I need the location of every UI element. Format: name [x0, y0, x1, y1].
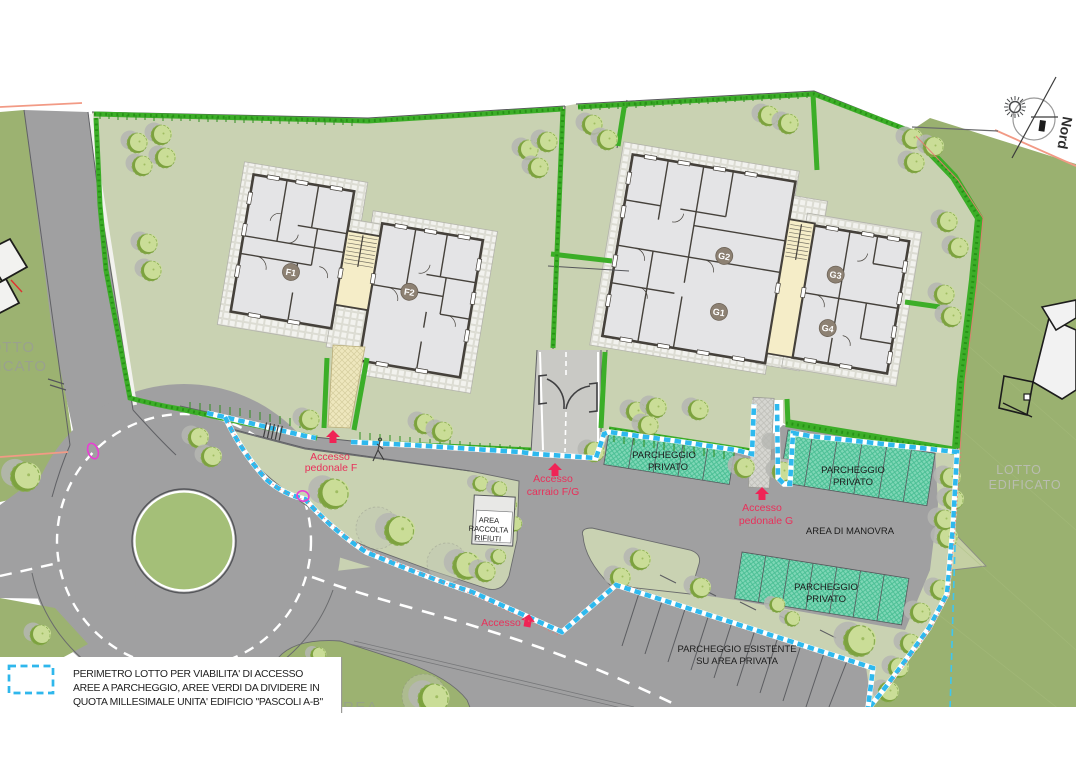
svg-text:PARCHEGGIO: PARCHEGGIO	[794, 582, 858, 593]
svg-text:G2: G2	[717, 251, 731, 263]
svg-text:EDIFICATO: EDIFICATO	[989, 478, 1062, 492]
svg-text:pedonale G: pedonale G	[739, 515, 793, 527]
svg-text:carraio F/G: carraio F/G	[527, 486, 580, 498]
svg-text:RIFIUTI: RIFIUTI	[475, 533, 502, 543]
svg-text:G3: G3	[829, 269, 843, 281]
svg-text:PARCHEGGIO: PARCHEGGIO	[821, 465, 885, 476]
svg-text:PARCHEGGIO ESISTENTE: PARCHEGGIO ESISTENTE	[677, 644, 796, 655]
svg-text:Accesso: Accesso	[481, 617, 521, 629]
svg-text:Accesso: Accesso	[533, 473, 573, 485]
svg-text:LOTTO: LOTTO	[0, 339, 35, 356]
svg-text:G4: G4	[821, 323, 835, 335]
svg-text:SU AREA PRIVATA: SU AREA PRIVATA	[696, 656, 778, 667]
svg-text:PRIVATO: PRIVATO	[648, 462, 688, 473]
svg-text:QUOTA MILLESIMALE UNITA' EDIFI: QUOTA MILLESIMALE UNITA' EDIFICIO "PASCO…	[73, 697, 323, 708]
svg-text:G1: G1	[712, 306, 726, 318]
svg-text:PRIVATO: PRIVATO	[806, 594, 846, 605]
svg-text:PRIVATO: PRIVATO	[833, 477, 873, 488]
svg-text:pedonale F: pedonale F	[305, 462, 358, 474]
svg-text:Accesso: Accesso	[742, 502, 782, 514]
svg-text:PERIMETRO LOTTO PER VIABILITA': PERIMETRO LOTTO PER VIABILITA' DI ACCESS…	[73, 669, 303, 680]
svg-text:LOTTO: LOTTO	[996, 463, 1041, 477]
svg-text:F2: F2	[403, 286, 415, 298]
svg-text:EDIFICATO: EDIFICATO	[0, 358, 47, 375]
svg-text:F1: F1	[285, 267, 297, 279]
svg-text:AREE A PARCHEGGIO, AREE VERDI: AREE A PARCHEGGIO, AREE VERDI DA DIVIDER…	[73, 683, 319, 694]
svg-text:AREA DI MANOVRA: AREA DI MANOVRA	[806, 526, 895, 537]
svg-text:PARCHEGGIO: PARCHEGGIO	[632, 450, 696, 461]
